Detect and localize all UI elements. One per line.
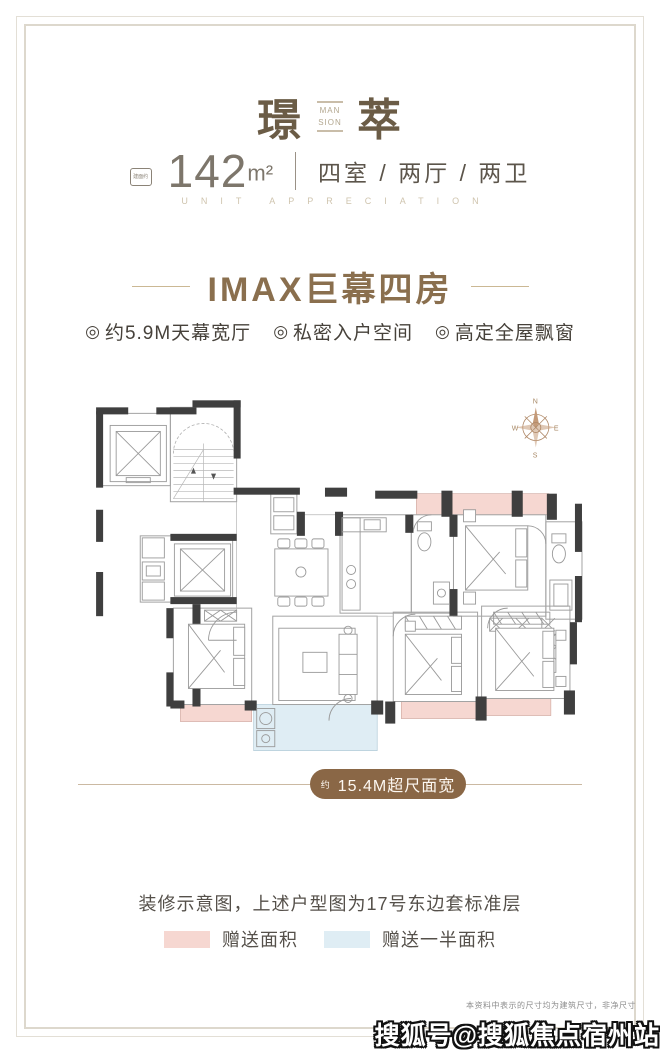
room-layout-text: 四室 / 两厅 / 两卫 xyxy=(318,154,530,188)
half-gift-area-swatch xyxy=(324,931,370,948)
project-title: 璟 MAN SION 萃 xyxy=(0,84,660,148)
width-value: 15.4M超尺面宽 xyxy=(338,772,455,796)
feature-label: 高定全屋飘窗 xyxy=(455,318,575,345)
utility-closets xyxy=(142,538,164,600)
divider-en-bottom: SION xyxy=(318,118,342,127)
sohu-watermark: 搜狐号@搜狐焦点宿州站 xyxy=(375,1016,660,1052)
poster-page: { "header": { "title_left": "璟", "title_… xyxy=(0,0,660,1053)
gift-area-label: 赠送面积 xyxy=(222,926,298,952)
headline-line-left xyxy=(132,286,190,287)
floor-plan: N W E S xyxy=(74,383,586,765)
area-value: 142 xyxy=(168,145,248,197)
unit-spec-row: 建面约 142m² 四室 / 两厅 / 两卫 xyxy=(0,148,660,194)
feature-item: ◎ 高定全屋飘窗 xyxy=(435,318,575,345)
half-gift-area-label: 赠送一半面积 xyxy=(382,926,496,952)
compass-e: E xyxy=(554,425,559,432)
feature-item: ◎ 私密入户空间 xyxy=(273,318,413,345)
elevator-shaft-1 xyxy=(110,425,166,482)
title-divider: MAN SION xyxy=(317,101,343,132)
dining-table xyxy=(275,539,328,606)
half-gift-balcony xyxy=(254,705,377,751)
selling-headline: IMAX巨幕四房 xyxy=(208,262,453,311)
headline-line-right xyxy=(471,286,529,287)
dimension-disclaimer: 本资料中表示的尺寸均为建筑尺寸，非净尺寸 xyxy=(466,1000,636,1011)
bedroom-4 xyxy=(494,612,566,690)
feature-bullet-icon: ◎ xyxy=(85,322,101,342)
plan-caption: 装修示意图，上述户型图为17号东边套标准层 xyxy=(0,890,660,916)
elevator-shaft-2 xyxy=(174,544,230,596)
feature-bullet-icon: ◎ xyxy=(435,322,451,342)
feature-list: ◎ 约5.9M天幕宽厅 ◎ 私密入户空间 ◎ 高定全屋飘窗 xyxy=(0,318,660,345)
floor-plan-svg: N W E S xyxy=(74,383,586,765)
gift-area-swatch xyxy=(164,931,210,948)
area-unit: m² xyxy=(247,161,273,186)
stairwell xyxy=(173,423,233,501)
kitchen xyxy=(342,518,386,610)
legend-item-half-gift: 赠送一半面积 xyxy=(324,926,496,952)
title-char-left: 璟 xyxy=(257,84,303,148)
master-bedroom xyxy=(464,510,528,604)
divider-bar-top xyxy=(317,101,343,103)
divider-en-top: MAN xyxy=(320,106,341,115)
subtitle-en: UNIT APPRECIATION xyxy=(0,196,660,206)
feature-label: 约5.9M天幕宽厅 xyxy=(105,318,251,345)
compass-w: W xyxy=(512,425,519,432)
bathroom-2 xyxy=(550,534,572,610)
divider-bar-bottom xyxy=(317,130,343,132)
compass-n: N xyxy=(533,398,538,405)
living-room xyxy=(279,626,357,702)
unit-area: 142m² xyxy=(168,148,273,194)
legend-item-gift: 赠送面积 xyxy=(164,926,298,952)
title-char-right: 萃 xyxy=(357,84,403,148)
area-type-badge: 建面约 xyxy=(130,168,152,186)
feature-bullet-icon: ◎ xyxy=(273,322,289,342)
compass-icon: N W E S xyxy=(512,398,559,459)
width-dimension-badge: 约 15.4M超尺面宽 xyxy=(310,769,466,799)
spec-divider xyxy=(295,152,296,190)
feature-label: 私密入户空间 xyxy=(293,318,413,345)
compass-s: S xyxy=(533,453,538,460)
legend: 赠送面积 赠送一半面积 xyxy=(0,926,660,952)
bedroom-3 xyxy=(405,616,461,694)
selling-headline-row: IMAX巨幕四房 xyxy=(0,262,660,311)
width-prefix: 约 xyxy=(321,778,330,791)
feature-item: ◎ 约5.9M天幕宽厅 xyxy=(85,318,251,345)
bathroom-1 xyxy=(417,522,449,604)
equipment-platform xyxy=(274,498,294,530)
